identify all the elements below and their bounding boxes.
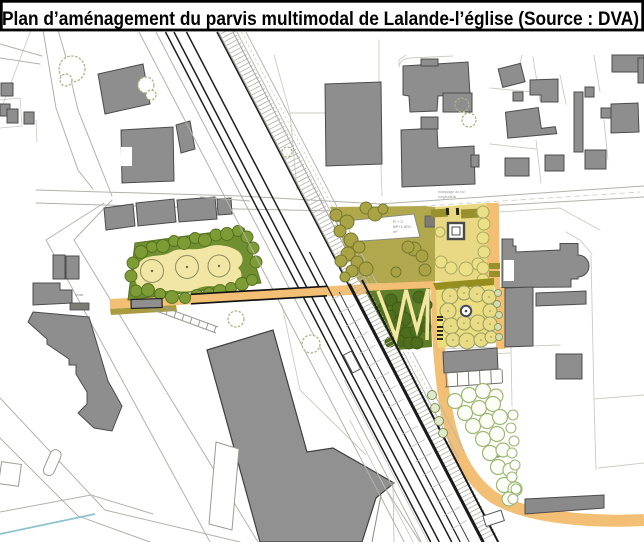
svg-text:Plan d’aménagement du parvis m: Plan d’aménagement du parvis multimodal … [2,8,639,30]
svg-text:m²: m² [393,229,398,234]
svg-text:école: école [75,293,83,297]
svg-text:marquage au sol: marquage au sol [438,190,465,194]
svg-text:longitudinal: longitudinal [438,195,456,199]
